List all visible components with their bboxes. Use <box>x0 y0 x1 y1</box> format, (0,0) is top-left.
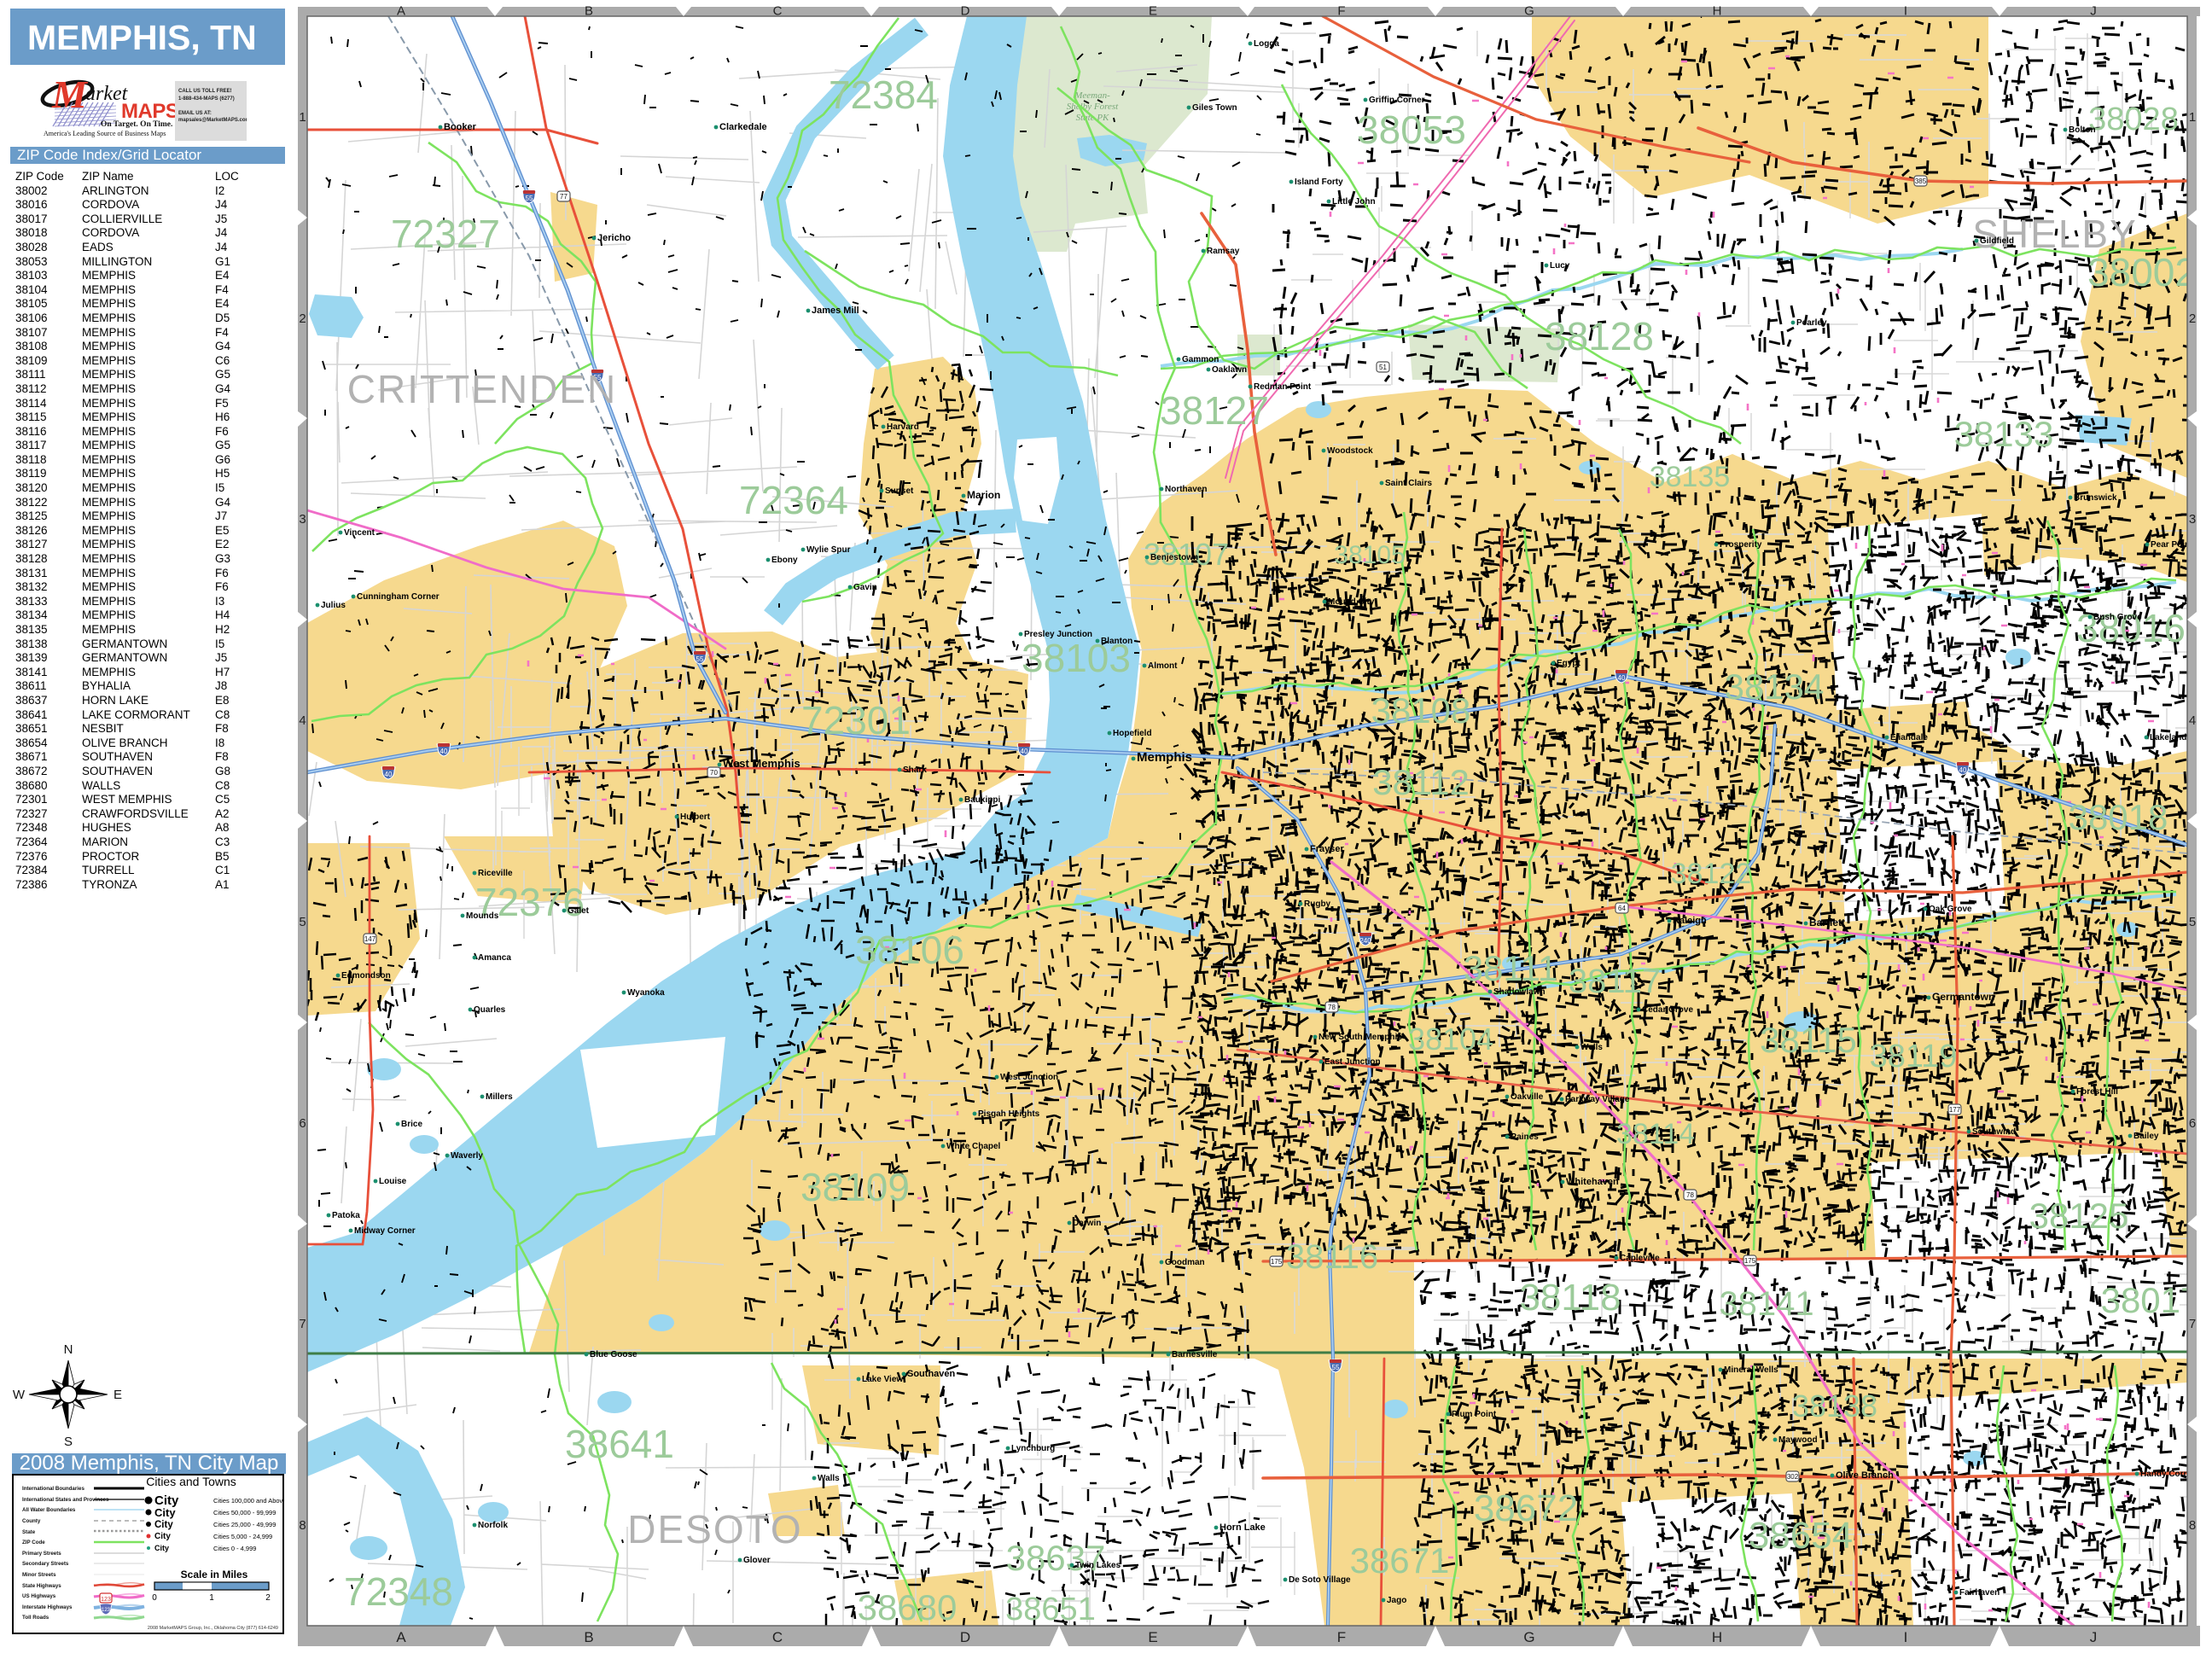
svg-text:F: F <box>1337 1629 1346 1645</box>
svg-text:Midway Corner: Midway Corner <box>354 1226 416 1236</box>
svg-text:Mounds: Mounds <box>466 911 499 921</box>
svg-text:Minor Streets: Minor Streets <box>22 1572 56 1578</box>
svg-text:77: 77 <box>560 193 568 201</box>
svg-text:385: 385 <box>1915 178 1927 185</box>
svg-text:Mineral Wells: Mineral Wells <box>1724 1365 1778 1375</box>
svg-text:Toll Roads: Toll Roads <box>22 1615 49 1621</box>
svg-text:Oakville: Oakville <box>1511 1092 1544 1102</box>
svg-text:Northaven: Northaven <box>1165 485 1207 494</box>
svg-text:Harvard: Harvard <box>887 422 919 432</box>
svg-text:Lucy: Lucy <box>1550 261 1570 271</box>
svg-text:38672: 38672 <box>1474 1487 1578 1529</box>
svg-text:40: 40 <box>385 771 393 778</box>
svg-text:D: D <box>961 4 970 19</box>
svg-text:Brunswick: Brunswick <box>2074 493 2117 503</box>
svg-text:Patoka: Patoka <box>332 1211 360 1220</box>
svg-text:West Junction: West Junction <box>1000 1073 1058 1082</box>
svg-text:38117: 38117 <box>1569 963 1661 1000</box>
svg-text:Ramsay: Ramsay <box>1207 247 1240 256</box>
svg-text:38671: 38671 <box>1350 1540 1450 1580</box>
svg-text:Walls: Walls <box>818 1474 840 1483</box>
svg-text:Plum Point: Plum Point <box>1452 1410 1497 1419</box>
svg-text:3: 3 <box>2189 512 2196 527</box>
svg-text:Frayser: Frayser <box>1310 844 1344 854</box>
svg-text:8: 8 <box>2189 1518 2196 1533</box>
svg-text:38651: 38651 <box>1005 1592 1096 1627</box>
svg-text:Secondary Streets: Secondary Streets <box>22 1561 69 1567</box>
svg-text:Giles Town: Giles Town <box>1192 103 1237 113</box>
svg-text:55: 55 <box>526 195 533 202</box>
svg-text:38114: 38114 <box>1616 1118 1695 1150</box>
svg-text:38106: 38106 <box>855 928 964 972</box>
svg-text:On Target. On Time.: On Target. On Time. <box>101 120 172 129</box>
svg-text:Cunningham Corner: Cunningham Corner <box>357 592 439 602</box>
svg-text:Goodman: Goodman <box>1165 1258 1205 1267</box>
svg-text:38637: 38637 <box>1006 1538 1106 1578</box>
svg-text:Horn Lake: Horn Lake <box>1220 1522 1266 1533</box>
svg-text:Prosperity: Prosperity <box>1720 540 1762 550</box>
svg-text:Oaklawn: Oaklawn <box>1212 365 1247 375</box>
svg-text:1: 1 <box>2189 110 2196 125</box>
svg-text:72327: 72327 <box>391 212 500 256</box>
svg-text:Memphis: Memphis <box>1137 750 1192 765</box>
svg-text:Woodstock: Woodstock <box>1327 446 1373 456</box>
svg-text:Benjestown: Benjestown <box>1150 553 1198 562</box>
svg-text:D: D <box>960 1629 970 1645</box>
svg-text:240: 240 <box>1359 937 1371 945</box>
svg-text:Shadowlawn: Shadowlawn <box>1493 987 1545 997</box>
svg-text:123: 123 <box>101 1597 111 1603</box>
svg-text:B: B <box>584 1629 593 1645</box>
svg-text:Pearley: Pearley <box>1796 318 1827 328</box>
svg-text:Maywood: Maywood <box>1778 1435 1818 1445</box>
svg-text:W: W <box>13 1388 26 1402</box>
svg-text:72348: 72348 <box>344 1569 453 1614</box>
svg-text:6: 6 <box>299 1116 306 1131</box>
svg-text:Cities 100,000 and Above: Cities 100,000 and Above <box>213 1497 284 1505</box>
svg-text:America's Leading Source of B: America's Leading Source of Business Map… <box>44 130 166 137</box>
svg-text:Wyanoka: Wyanoka <box>627 988 665 998</box>
svg-text:White Chapel: White Chapel <box>946 1142 1001 1151</box>
svg-text:A: A <box>397 4 405 19</box>
svg-text:Gammon: Gammon <box>1182 355 1219 364</box>
svg-text:US Highways: US Highways <box>22 1593 56 1599</box>
svg-text:Marion: Marion <box>967 489 1000 501</box>
svg-text:Capleville: Capleville <box>1620 1254 1660 1263</box>
svg-text:Lake View: Lake View <box>862 1375 903 1384</box>
svg-text:City: City <box>154 1520 173 1530</box>
svg-text:Gildfield: Gildfield <box>1980 236 2014 246</box>
svg-text:Ebony: Ebony <box>771 556 798 565</box>
svg-text:Gavin: Gavin <box>853 583 877 592</box>
svg-text:Pisgah Heights: Pisgah Heights <box>978 1109 1040 1119</box>
svg-text:Redman Point: Redman Point <box>1254 382 1312 392</box>
svg-text:Cities 5,000 - 24,999: Cities 5,000 - 24,999 <box>213 1533 272 1540</box>
svg-text:S: S <box>64 1435 73 1449</box>
svg-text:Shark: Shark <box>903 765 927 775</box>
svg-text:International Boundaries: International Boundaries <box>22 1486 84 1492</box>
svg-text:70: 70 <box>710 769 718 777</box>
svg-text:City: City <box>154 1532 171 1541</box>
svg-text:Southaven: Southaven <box>907 1369 956 1379</box>
svg-text:I: I <box>1904 4 1907 19</box>
svg-text:State: State <box>22 1529 36 1535</box>
svg-text:MAPS: MAPS <box>121 100 179 123</box>
svg-text:78: 78 <box>1686 1191 1694 1199</box>
svg-text:38127: 38127 <box>1160 388 1269 433</box>
svg-text:1: 1 <box>299 110 306 125</box>
svg-text:Egypt: Egypt <box>1557 659 1580 668</box>
svg-text:Raleigh: Raleigh <box>1673 916 1707 926</box>
svg-text:51: 51 <box>1379 364 1387 371</box>
svg-text:Bailey: Bailey <box>2133 1132 2159 1141</box>
svg-text:Whitehaven: Whitehaven <box>1566 1177 1619 1187</box>
svg-text:Lakeland: Lakeland <box>2150 733 2186 742</box>
svg-text:Booker: Booker <box>444 122 477 132</box>
svg-text:2008 MarketMAPS Group, Inc., O: 2008 MarketMAPS Group, Inc., Oklahoma Ci… <box>148 1626 278 1631</box>
svg-text:H: H <box>1713 4 1722 19</box>
svg-text:James Mill: James Mill <box>812 306 859 316</box>
svg-text:Waverly: Waverly <box>451 1151 483 1161</box>
svg-text:Primary Streets: Primary Streets <box>22 1551 61 1557</box>
svg-text:Bauxippi: Bauxippi <box>964 795 1000 805</box>
svg-text:Shelby Forest: Shelby Forest <box>1067 102 1119 112</box>
svg-text:40: 40 <box>1021 748 1028 755</box>
svg-text:Cedar Grove: Cedar Grove <box>1642 1005 1693 1015</box>
svg-text:Presley Junction: Presley Junction <box>1024 630 1092 639</box>
svg-text:New South Memphis: New South Memphis <box>1318 1033 1402 1042</box>
svg-text:38641: 38641 <box>565 1422 674 1466</box>
svg-text:72384: 72384 <box>829 73 938 117</box>
svg-text:Clarkedale: Clarkedale <box>719 122 767 132</box>
svg-text:38122: 38122 <box>1671 858 1752 890</box>
svg-text:Cities 0 - 4,999: Cities 0 - 4,999 <box>213 1545 256 1552</box>
svg-text:Mound City: Mound City <box>1328 597 1375 607</box>
svg-text:38017: 38017 <box>2101 1280 2201 1320</box>
svg-text:Quarles: Quarles <box>474 1005 506 1015</box>
svg-text:0: 0 <box>152 1593 157 1603</box>
svg-text:147: 147 <box>364 935 376 943</box>
svg-text:40: 40 <box>1618 674 1626 682</box>
svg-text:Almont: Almont <box>1148 661 1178 671</box>
svg-text:Southwind: Southwind <box>1972 1127 2016 1137</box>
svg-text:38141: 38141 <box>1719 1285 1813 1323</box>
svg-text:64: 64 <box>1618 905 1626 912</box>
svg-text:Vincent: Vincent <box>344 528 375 538</box>
svg-text:38115: 38115 <box>1760 1020 1857 1060</box>
svg-text:Eliandale: Eliandale <box>1890 733 1928 742</box>
svg-text:3: 3 <box>299 512 306 527</box>
svg-text:2: 2 <box>2189 311 2196 326</box>
svg-text:Blanton: Blanton <box>1101 637 1132 646</box>
svg-text:38680: 38680 <box>858 1587 958 1627</box>
svg-text:55: 55 <box>696 655 704 663</box>
svg-text:Hulbert: Hulbert <box>680 812 711 822</box>
svg-text:38018: 38018 <box>2069 797 2168 837</box>
svg-text:Little John: Little John <box>1332 197 1376 207</box>
svg-text:40: 40 <box>1959 766 1967 774</box>
svg-text:County: County <box>22 1518 41 1524</box>
svg-text:38053: 38053 <box>1357 108 1466 152</box>
svg-text:ZIP Code: ZIP Code <box>22 1540 45 1545</box>
svg-text:Blue Goose: Blue Goose <box>590 1350 637 1359</box>
svg-text:Bolton: Bolton <box>2069 125 2096 135</box>
svg-text:38138: 38138 <box>1792 1388 1877 1423</box>
svg-text:Twin Lakes: Twin Lakes <box>1075 1561 1121 1570</box>
svg-text:DESOTO: DESOTO <box>627 1507 802 1551</box>
svg-text:J: J <box>2090 1629 2098 1645</box>
svg-text:38119: 38119 <box>1870 1039 1958 1074</box>
svg-text:Sunset: Sunset <box>885 486 914 496</box>
svg-text:38134: 38134 <box>1725 667 1825 707</box>
svg-text:7: 7 <box>2189 1317 2196 1331</box>
svg-text:C: C <box>772 1629 783 1645</box>
svg-text:City: City <box>154 1506 176 1519</box>
svg-text:C: C <box>773 4 783 19</box>
svg-text:Island Forty: Island Forty <box>1295 178 1343 187</box>
svg-text:Interstate Highways: Interstate Highways <box>22 1604 73 1610</box>
svg-text:38118: 38118 <box>1519 1277 1621 1318</box>
svg-text:38028: 38028 <box>2088 102 2179 137</box>
svg-text:East Junction: East Junction <box>1324 1057 1381 1067</box>
svg-text:Fairhaven: Fairhaven <box>1959 1588 2000 1598</box>
svg-text:N: N <box>64 1342 73 1357</box>
svg-text:Lynchburg: Lynchburg <box>1011 1444 1055 1453</box>
svg-text:4: 4 <box>299 713 306 728</box>
svg-text:5: 5 <box>299 915 306 929</box>
svg-text:78: 78 <box>1328 1004 1336 1011</box>
svg-text:2: 2 <box>299 311 306 326</box>
svg-text:Griffin Corner: Griffin Corner <box>1369 96 1425 105</box>
svg-text:F: F <box>1337 4 1345 19</box>
svg-text:E: E <box>114 1388 122 1402</box>
svg-text:8: 8 <box>299 1518 306 1533</box>
svg-text:2: 2 <box>265 1593 271 1603</box>
svg-text:177: 177 <box>1949 1106 1961 1114</box>
svg-text:38108: 38108 <box>1371 690 1471 731</box>
svg-text:5: 5 <box>2189 915 2196 929</box>
svg-text:West Memphis: West Memphis <box>723 757 800 770</box>
svg-text:Galet: Galet <box>568 906 590 916</box>
svg-text:Amanca: Amanca <box>478 953 511 963</box>
svg-text:SHELBY: SHELBY <box>1972 212 2138 256</box>
svg-text:Saint Clairs: Saint Clairs <box>1385 479 1432 488</box>
svg-text:CRITTENDEN: CRITTENDEN <box>347 367 617 411</box>
svg-text:Meeman-: Meeman- <box>1074 90 1110 101</box>
svg-text:Germantown: Germantown <box>1932 991 1994 1003</box>
svg-text:A: A <box>396 1629 406 1645</box>
svg-text:Oak Grove: Oak Grove <box>1929 905 1972 914</box>
svg-text:Cities 50,000 - 99,999: Cities 50,000 - 99,999 <box>213 1509 276 1516</box>
svg-text:Jericho: Jericho <box>597 233 631 243</box>
svg-text:Riceville: Riceville <box>478 869 513 878</box>
svg-text:38133: 38133 <box>1954 414 2054 454</box>
svg-text:6: 6 <box>2189 1116 2196 1131</box>
svg-text:B: B <box>585 4 593 19</box>
svg-text:38104: 38104 <box>1408 1022 1493 1057</box>
svg-text:Bartlett: Bartlett <box>1809 917 1845 928</box>
svg-text:55: 55 <box>1332 1364 1340 1371</box>
svg-text:Bush Grove: Bush Grove <box>2093 613 2142 622</box>
svg-text:38654: 38654 <box>1749 1515 1853 1557</box>
svg-text:38109: 38109 <box>800 1165 910 1209</box>
svg-text:G: G <box>1524 4 1534 19</box>
svg-text:Scale in Miles: Scale in Miles <box>181 1569 248 1580</box>
svg-text:72364: 72364 <box>739 478 848 522</box>
svg-text:Edmondson: Edmondson <box>341 971 391 981</box>
svg-text:H: H <box>1712 1629 1722 1645</box>
svg-text:Logga: Logga <box>1254 39 1279 49</box>
svg-text:Brice: Brice <box>401 1120 422 1129</box>
svg-text:38002: 38002 <box>2087 250 2197 294</box>
svg-text:72301: 72301 <box>801 698 911 742</box>
svg-text:Wells: Wells <box>1580 1043 1603 1052</box>
svg-text:175: 175 <box>1744 1257 1756 1265</box>
svg-text:Olive Branch: Olive Branch <box>1836 1470 1894 1481</box>
svg-text:Cities and Towns: Cities and Towns <box>146 1475 236 1488</box>
svg-text:G: G <box>1523 1629 1534 1645</box>
svg-text:Louise: Louise <box>379 1177 407 1186</box>
svg-text:38128: 38128 <box>1545 314 1654 358</box>
svg-text:J: J <box>2090 4 2097 19</box>
svg-text:Jago: Jago <box>1387 1596 1406 1605</box>
svg-text:Hopefield: Hopefield <box>1113 729 1152 738</box>
svg-text:38105: 38105 <box>1334 541 1405 569</box>
svg-text:Norfolk: Norfolk <box>478 1521 508 1530</box>
svg-text:40: 40 <box>440 748 448 755</box>
svg-text:Forest Hill: Forest Hill <box>2076 1087 2118 1097</box>
svg-text:Wylie Spur: Wylie Spur <box>806 545 851 555</box>
svg-text:38116: 38116 <box>1286 1238 1378 1276</box>
svg-text:1: 1 <box>209 1593 214 1603</box>
svg-text:Julius: Julius <box>321 601 346 610</box>
svg-text:All Water Boundaries: All Water Boundaries <box>22 1507 76 1513</box>
svg-text:M: M <box>51 73 89 116</box>
svg-text:38112: 38112 <box>1372 762 1470 802</box>
svg-text:Raines: Raines <box>1511 1132 1539 1142</box>
svg-text:175: 175 <box>1271 1258 1283 1266</box>
svg-text:38125: 38125 <box>2029 1196 2129 1236</box>
svg-text:Millers: Millers <box>486 1092 513 1102</box>
svg-text:Darwin: Darwin <box>1073 1219 1101 1228</box>
svg-text:E: E <box>1148 1629 1157 1645</box>
svg-text:State Highways: State Highways <box>22 1583 61 1589</box>
svg-text:7: 7 <box>299 1317 306 1331</box>
svg-text:Barnesville: Barnesville <box>1172 1350 1218 1359</box>
svg-text:City: City <box>154 1544 169 1552</box>
svg-text:I: I <box>1904 1629 1908 1645</box>
svg-text:38135: 38135 <box>1650 461 1731 493</box>
svg-text:302: 302 <box>1787 1473 1799 1481</box>
svg-text:38111: 38111 <box>1464 948 1558 988</box>
svg-text:Rugby: Rugby <box>1304 899 1331 909</box>
svg-text:De Soto Village: De Soto Village <box>1289 1575 1351 1585</box>
svg-text:4: 4 <box>2189 713 2196 728</box>
svg-text:Cities 25,000 - 49,999: Cities 25,000 - 49,999 <box>213 1521 276 1528</box>
svg-text:Glover: Glover <box>743 1556 771 1565</box>
svg-text:123: 123 <box>102 1608 111 1613</box>
svg-text:Parkway Village: Parkway Village <box>1565 1095 1630 1104</box>
svg-text:E: E <box>1149 4 1157 19</box>
